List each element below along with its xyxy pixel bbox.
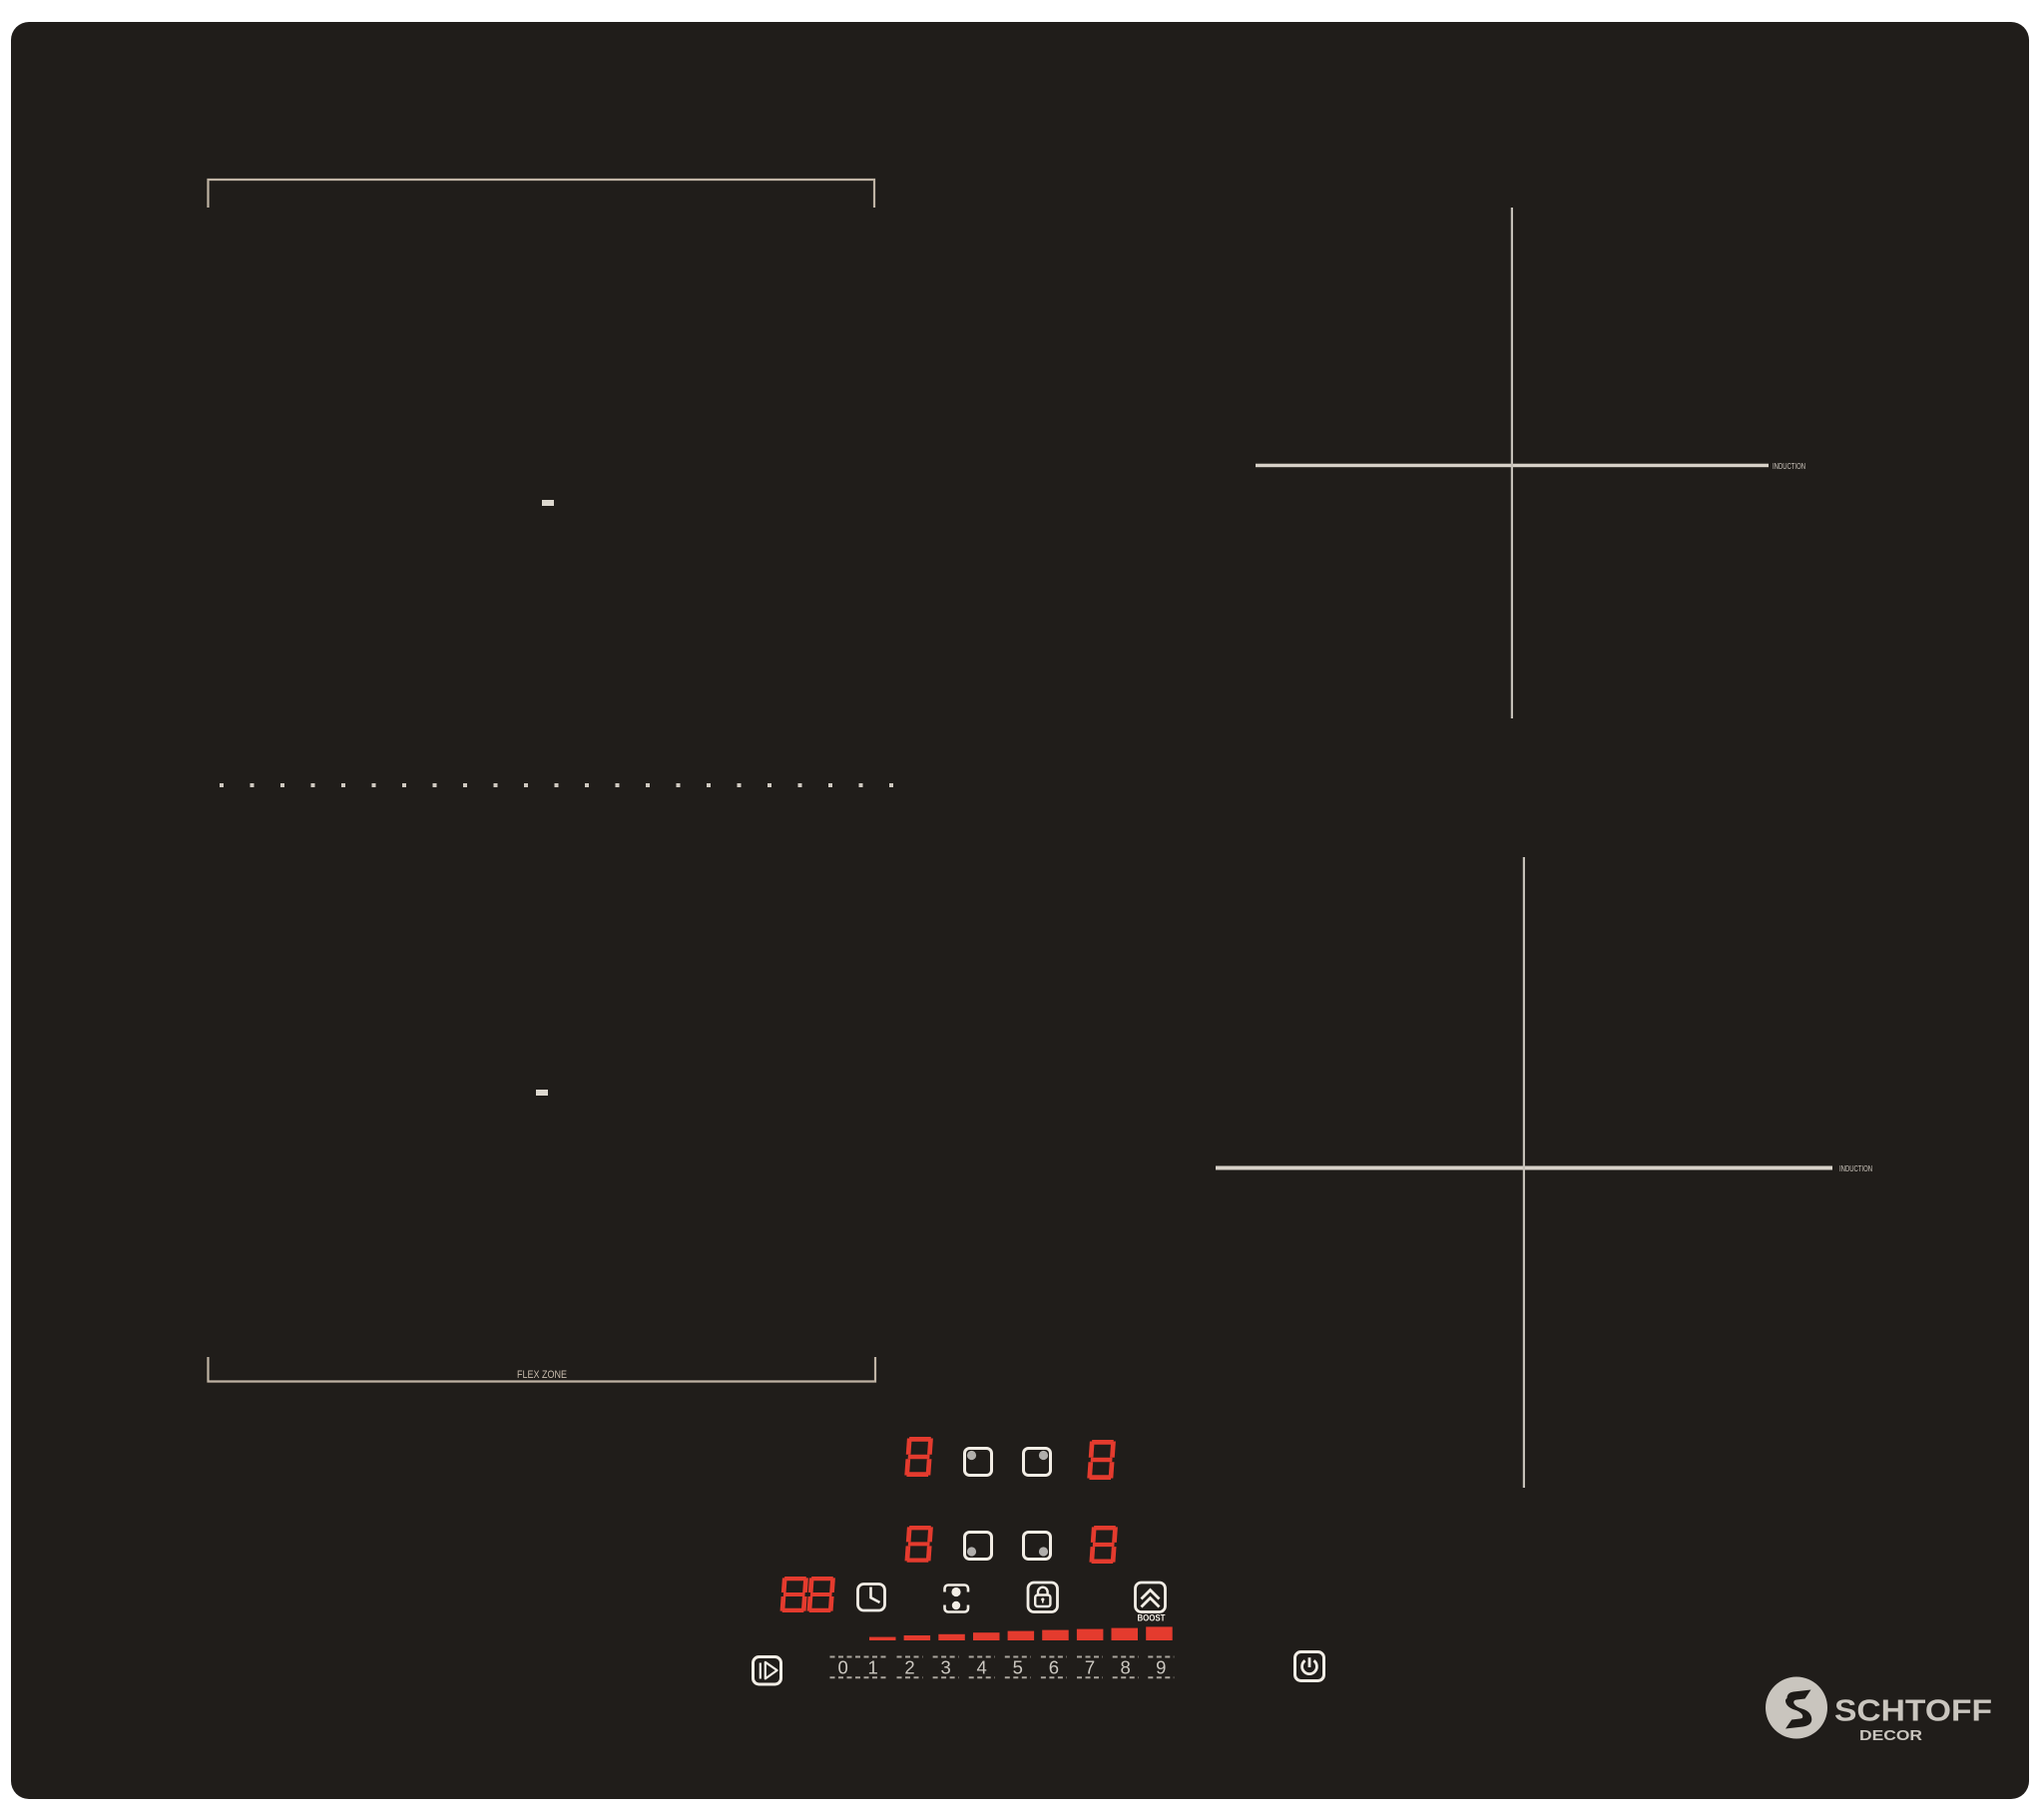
svg-text:3: 3 [940,1657,950,1678]
svg-text:BOOST: BOOST [1138,1613,1166,1623]
svg-text:FLEX ZONE: FLEX ZONE [517,1369,567,1381]
svg-text:7: 7 [1085,1657,1095,1678]
svg-text:SCHTOFF: SCHTOFF [1834,1693,1992,1728]
svg-text:0: 0 [837,1657,847,1678]
svg-text:DECOR: DECOR [1859,1728,1923,1744]
svg-text:4: 4 [977,1657,987,1678]
svg-text:1: 1 [867,1657,877,1678]
svg-text:9: 9 [1156,1657,1166,1678]
svg-text:8: 8 [1121,1657,1131,1678]
svg-text:INDUCTION: INDUCTION [1773,461,1805,471]
svg-text:2: 2 [904,1657,914,1678]
svg-text:6: 6 [1049,1657,1059,1678]
svg-text:INDUCTION: INDUCTION [1839,1163,1872,1173]
svg-text:5: 5 [1013,1657,1023,1678]
